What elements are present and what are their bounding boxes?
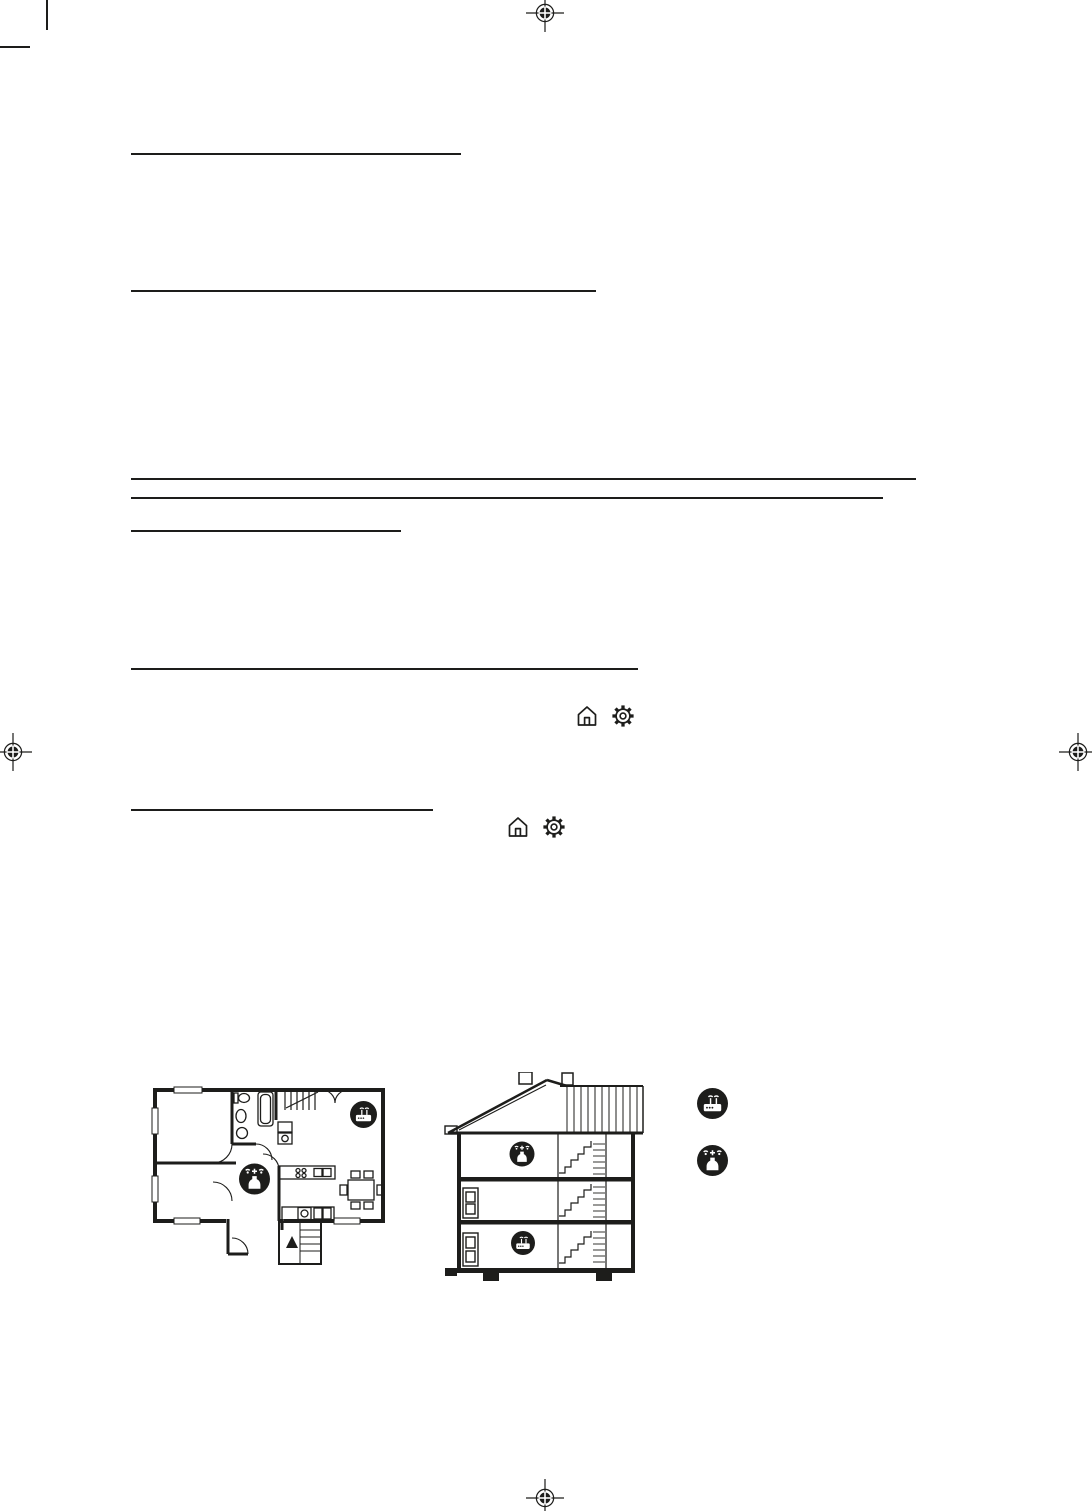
registration-mark-top (526, 0, 564, 32)
wifi-router-icon (697, 1088, 728, 1119)
section-doors (463, 1188, 478, 1266)
plan-stairs (285, 1090, 318, 1110)
bathroom-fixtures (234, 1092, 292, 1144)
wifi-extender-icon (697, 1145, 728, 1176)
heading-rule-7 (131, 809, 433, 811)
registration-mark-left (0, 733, 32, 771)
heading-rule-3 (131, 478, 916, 480)
registration-mark-right (1059, 733, 1092, 771)
wifi-extender-icon (510, 1142, 535, 1167)
wifi-router-icon (511, 1231, 535, 1255)
crop-mark-top-left-horizontal (0, 46, 30, 48)
kitchen-counters (279, 1166, 335, 1220)
stair-railings (593, 1144, 605, 1262)
heading-rule-1 (131, 153, 461, 155)
heading-rule-6 (131, 668, 638, 670)
crop-mark-top-left-vertical (46, 0, 48, 30)
inline-icon-row-1 (575, 704, 635, 728)
settings-gear-icon (611, 704, 635, 728)
heading-rule-5 (131, 530, 401, 532)
heading-rule-4 (131, 497, 883, 499)
wifi-extender-icon (239, 1164, 270, 1195)
home-icon (506, 815, 530, 839)
registration-mark-bottom (526, 1479, 564, 1511)
apartment-floor-plan (148, 1080, 393, 1275)
entry-arrow (286, 1236, 298, 1248)
settings-gear-icon (542, 815, 566, 839)
house-cross-section (443, 1072, 658, 1292)
stair-flights (559, 1141, 591, 1263)
inline-icon-row-2 (506, 815, 566, 839)
scanned-manual-page (0, 0, 1092, 1511)
wifi-router-icon (350, 1101, 377, 1128)
roof-hatching (567, 1086, 637, 1133)
heading-rule-2 (131, 290, 596, 292)
home-icon (575, 704, 599, 728)
dining-set (340, 1171, 384, 1209)
